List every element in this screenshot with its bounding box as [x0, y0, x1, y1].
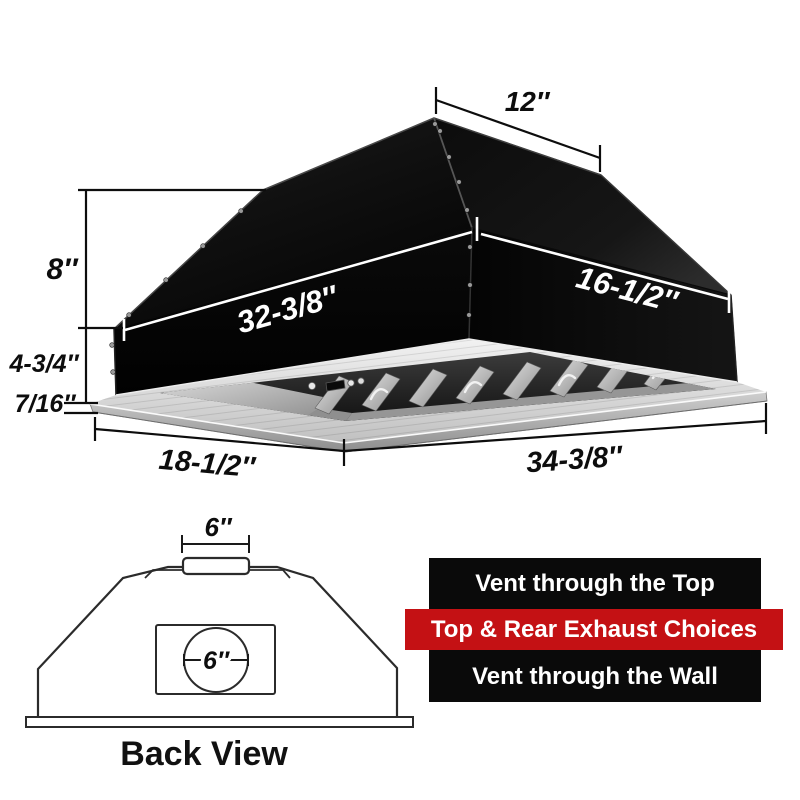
dim-label-upper-height: 8″	[46, 253, 79, 286]
dim-label-top-vent-width: 6″	[205, 512, 233, 542]
light-button	[348, 380, 354, 386]
hood-3d-view: 32-3/8″ 16-1/2″ 12″ 8″ 4-3/4″ 7/16″ 18-1…	[9, 86, 767, 484]
back-view-drawing: 6″ 6″ Back View	[26, 512, 413, 773]
product-dimension-diagram: 32-3/8″ 16-1/2″ 12″ 8″ 4-3/4″ 7/16″ 18-1…	[0, 0, 800, 800]
dim-label-lower-height: 4-3/4″	[9, 350, 80, 378]
dim-label-flange-thickness: 7/16″	[15, 390, 77, 418]
dim-label-bottom-width: 34-3/8″	[525, 441, 624, 480]
banner-vent-through-wall: Vent through the Wall	[429, 651, 761, 702]
top-vent-collar	[183, 558, 249, 574]
banner-exhaust-choices: Top & Rear Exhaust Choices	[405, 609, 783, 650]
banner-vent-through-top: Vent through the Top	[429, 558, 761, 609]
vent-options-banners: Vent through the Top Vent through the Wa…	[405, 558, 783, 702]
back-view-caption: Back View	[120, 735, 288, 773]
light-button	[308, 382, 315, 389]
back-view-base-plate	[26, 717, 413, 727]
dim-label-bottom-depth: 18-1/2″	[158, 444, 258, 484]
dim-label-top-depth: 12″	[505, 86, 551, 117]
light-button	[358, 378, 364, 384]
dim-label-rear-vent-diameter: 6″	[203, 647, 230, 675]
